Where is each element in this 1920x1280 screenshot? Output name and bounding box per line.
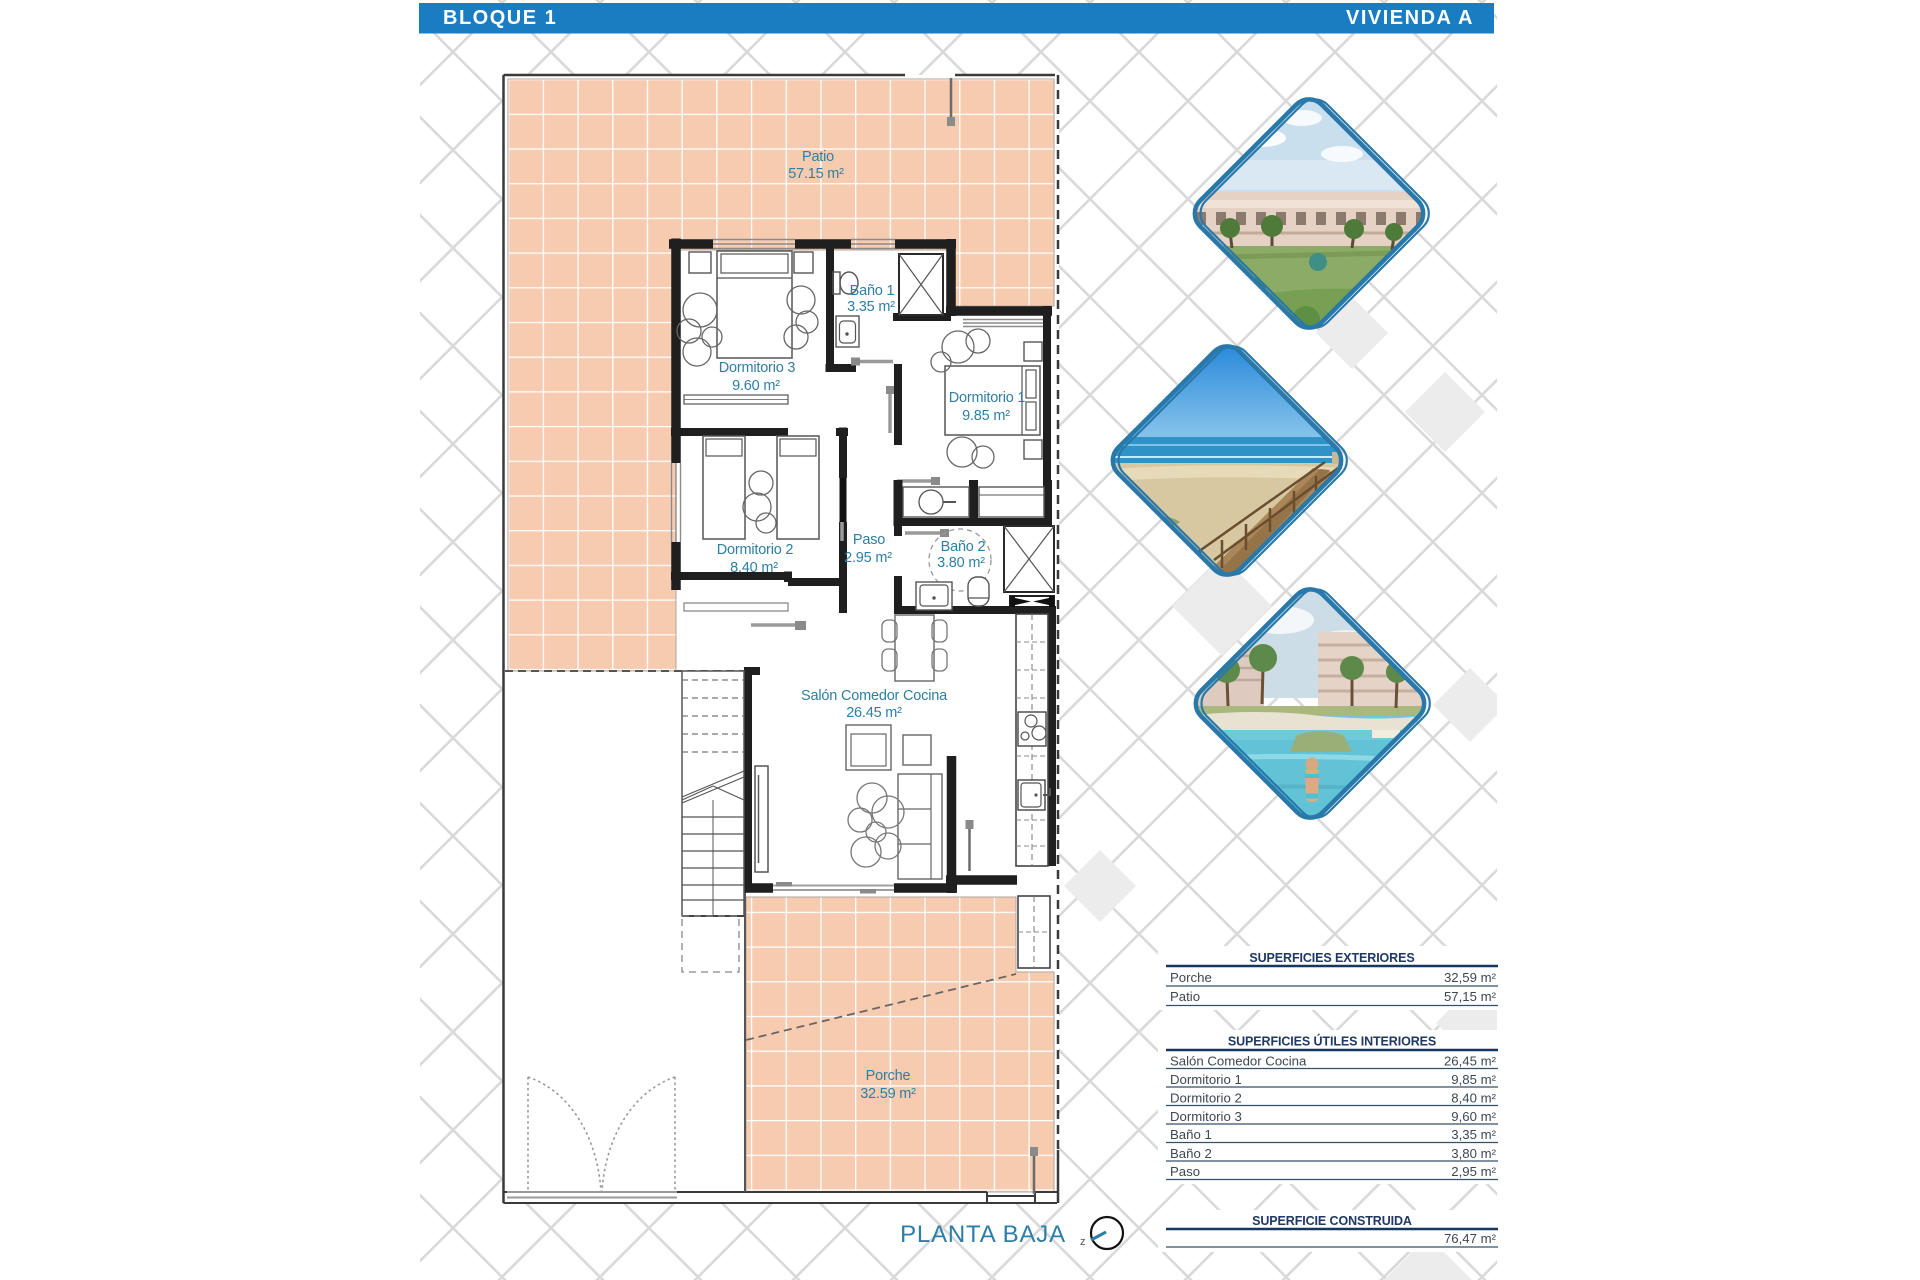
svg-text:3,80 m²: 3,80 m² bbox=[1451, 1146, 1496, 1161]
svg-text:2,95 m²: 2,95 m² bbox=[1451, 1164, 1496, 1179]
svg-text:3.80 m²: 3.80 m² bbox=[937, 555, 985, 571]
svg-text:Porche: Porche bbox=[866, 1068, 911, 1084]
svg-text:z: z bbox=[1080, 1236, 1086, 1248]
svg-text:9.85 m²: 9.85 m² bbox=[962, 408, 1010, 424]
svg-text:Salón Comedor Cocina: Salón Comedor Cocina bbox=[1170, 1054, 1307, 1069]
svg-text:3.35 m²: 3.35 m² bbox=[847, 299, 895, 315]
svg-text:SUPERFICIES EXTERIORES: SUPERFICIES EXTERIORES bbox=[1249, 951, 1414, 965]
svg-text:Dormitorio 1: Dormitorio 1 bbox=[1170, 1072, 1242, 1087]
svg-text:9.60 m²: 9.60 m² bbox=[732, 378, 780, 394]
svg-text:8.40 m²: 8.40 m² bbox=[730, 560, 778, 576]
svg-text:Dormitorio 2: Dormitorio 2 bbox=[717, 542, 794, 558]
svg-text:57,15 m²: 57,15 m² bbox=[1444, 989, 1497, 1004]
svg-text:76,47 m²: 76,47 m² bbox=[1444, 1231, 1497, 1246]
svg-text:9,85 m²: 9,85 m² bbox=[1451, 1072, 1496, 1087]
svg-text:Baño 1: Baño 1 bbox=[850, 283, 895, 299]
svg-text:Baño 2: Baño 2 bbox=[941, 539, 986, 555]
svg-text:Dormitorio 2: Dormitorio 2 bbox=[1170, 1091, 1242, 1106]
svg-text:Patio: Patio bbox=[1170, 989, 1200, 1004]
svg-text:SUPERFICIE CONSTRUIDA: SUPERFICIE CONSTRUIDA bbox=[1252, 1214, 1412, 1228]
svg-text:8,40 m²: 8,40 m² bbox=[1451, 1091, 1496, 1106]
svg-text:Paso: Paso bbox=[853, 532, 885, 548]
svg-text:2.95 m²: 2.95 m² bbox=[844, 550, 892, 566]
svg-text:3,35 m²: 3,35 m² bbox=[1451, 1127, 1496, 1142]
svg-text:32,59 m²: 32,59 m² bbox=[1444, 970, 1497, 985]
svg-text:SUPERFICIES ÚTILES INTERIORES: SUPERFICIES ÚTILES INTERIORES bbox=[1228, 1034, 1436, 1049]
svg-text:Porche: Porche bbox=[1170, 970, 1212, 985]
svg-text:Patio: Patio bbox=[802, 149, 834, 165]
svg-text:Salón Comedor Cocina: Salón Comedor Cocina bbox=[801, 688, 948, 704]
svg-text:9,60 m²: 9,60 m² bbox=[1451, 1109, 1496, 1124]
svg-text:26,45 m²: 26,45 m² bbox=[1444, 1054, 1497, 1069]
svg-text:32.59 m²: 32.59 m² bbox=[860, 1086, 916, 1102]
svg-text:PLANTA BAJA: PLANTA BAJA bbox=[900, 1221, 1066, 1248]
svg-text:Baño 2: Baño 2 bbox=[1170, 1146, 1212, 1161]
svg-text:Baño 1: Baño 1 bbox=[1170, 1127, 1212, 1142]
svg-text:Dormitorio 3: Dormitorio 3 bbox=[719, 360, 796, 376]
svg-text:26.45 m²: 26.45 m² bbox=[846, 705, 902, 721]
svg-text:BLOQUE 1: BLOQUE 1 bbox=[443, 7, 557, 29]
svg-text:57.15 m²: 57.15 m² bbox=[788, 166, 844, 182]
svg-text:Dormitorio 1: Dormitorio 1 bbox=[949, 390, 1026, 406]
svg-text:VIVIENDA A: VIVIENDA A bbox=[1346, 7, 1474, 29]
svg-text:Dormitorio 3: Dormitorio 3 bbox=[1170, 1109, 1242, 1124]
svg-text:Paso: Paso bbox=[1170, 1164, 1200, 1179]
